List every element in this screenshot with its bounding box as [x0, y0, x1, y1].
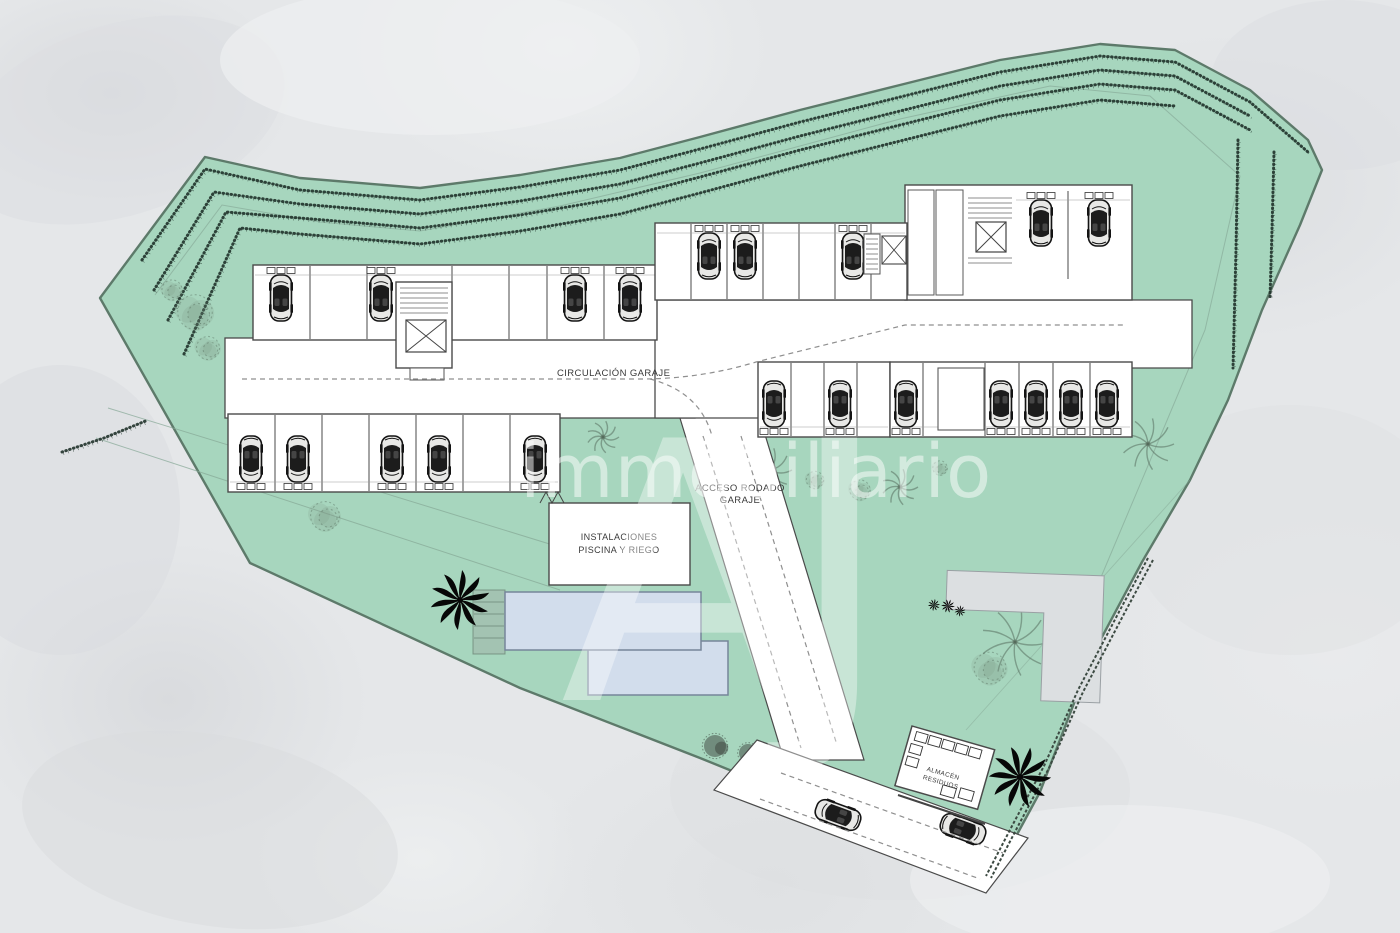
storage-locker — [1042, 429, 1050, 435]
storage-locker — [581, 268, 589, 274]
site-plan-drawing: ALMACÉN RESIDUOS CIRCULACIÓN GARAJE ACCE… — [0, 0, 1400, 933]
storage-locker — [378, 484, 386, 490]
storage-locker — [1093, 429, 1101, 435]
storage-locker — [388, 484, 396, 490]
storage-locker — [1027, 193, 1035, 199]
storage-locker — [445, 484, 453, 490]
car-icon — [427, 436, 451, 482]
storage-locker — [1085, 193, 1093, 199]
storage-locker — [294, 484, 302, 490]
watermark-monogram: AJ — [560, 366, 872, 785]
storage-locker — [1032, 429, 1040, 435]
parking-row — [890, 362, 1132, 437]
stair-core-left — [396, 282, 452, 380]
storage-locker — [997, 429, 1005, 435]
garage-room — [938, 368, 984, 430]
storage-locker — [1103, 429, 1111, 435]
storage-locker — [1022, 429, 1030, 435]
storage-locker — [257, 484, 265, 490]
car-icon — [269, 275, 293, 321]
storage-locker — [435, 484, 443, 490]
storage-locker — [626, 268, 634, 274]
storage-locker — [751, 226, 759, 232]
storage-locker — [705, 226, 713, 232]
car-icon — [1024, 381, 1048, 427]
storage-locker — [849, 226, 857, 232]
storage-locker — [287, 268, 295, 274]
car-icon — [894, 381, 918, 427]
storage-locker — [387, 268, 395, 274]
storage-locker — [247, 484, 255, 490]
storage-locker — [1095, 193, 1103, 199]
storage-room — [936, 190, 963, 295]
storage-locker — [859, 226, 867, 232]
storage-locker — [636, 268, 644, 274]
car-icon — [369, 275, 393, 321]
storage-locker — [731, 226, 739, 232]
storage-locker — [1037, 193, 1045, 199]
storage-locker — [367, 268, 375, 274]
storage-locker — [304, 484, 312, 490]
car-icon — [286, 436, 310, 482]
storage-locker — [1105, 193, 1113, 199]
storage-locker — [237, 484, 245, 490]
storage-locker — [1057, 429, 1065, 435]
storage-locker — [695, 226, 703, 232]
storage-locker — [1007, 429, 1015, 435]
storage-locker — [1047, 193, 1055, 199]
storage-locker — [267, 268, 275, 274]
storage-locker — [741, 226, 749, 232]
car-icon — [841, 233, 865, 279]
car-icon — [1087, 200, 1111, 246]
car-icon — [697, 233, 721, 279]
storage-locker — [1067, 429, 1075, 435]
storage-locker — [284, 484, 292, 490]
site-plan-page: ALMACÉN RESIDUOS CIRCULACIÓN GARAJE ACCE… — [0, 0, 1400, 933]
car-icon — [989, 381, 1013, 427]
storage-locker — [616, 268, 624, 274]
storage-locker — [1077, 429, 1085, 435]
car-icon — [1059, 381, 1083, 427]
storage-locker — [561, 268, 569, 274]
parking-row — [228, 414, 560, 492]
storage-room — [908, 190, 934, 295]
storage-locker — [277, 268, 285, 274]
storage-locker — [398, 484, 406, 490]
car-icon — [380, 436, 404, 482]
car-icon — [563, 275, 587, 321]
storage-locker — [425, 484, 433, 490]
storage-locker — [839, 226, 847, 232]
storage-locker — [715, 226, 723, 232]
storage-locker — [377, 268, 385, 274]
storage-locker — [1113, 429, 1121, 435]
car-icon — [239, 436, 263, 482]
parking-row — [253, 265, 657, 340]
car-icon — [618, 275, 642, 321]
car-icon — [1029, 200, 1053, 246]
car-icon — [733, 233, 757, 279]
storage-locker — [571, 268, 579, 274]
car-icon — [1095, 381, 1119, 427]
